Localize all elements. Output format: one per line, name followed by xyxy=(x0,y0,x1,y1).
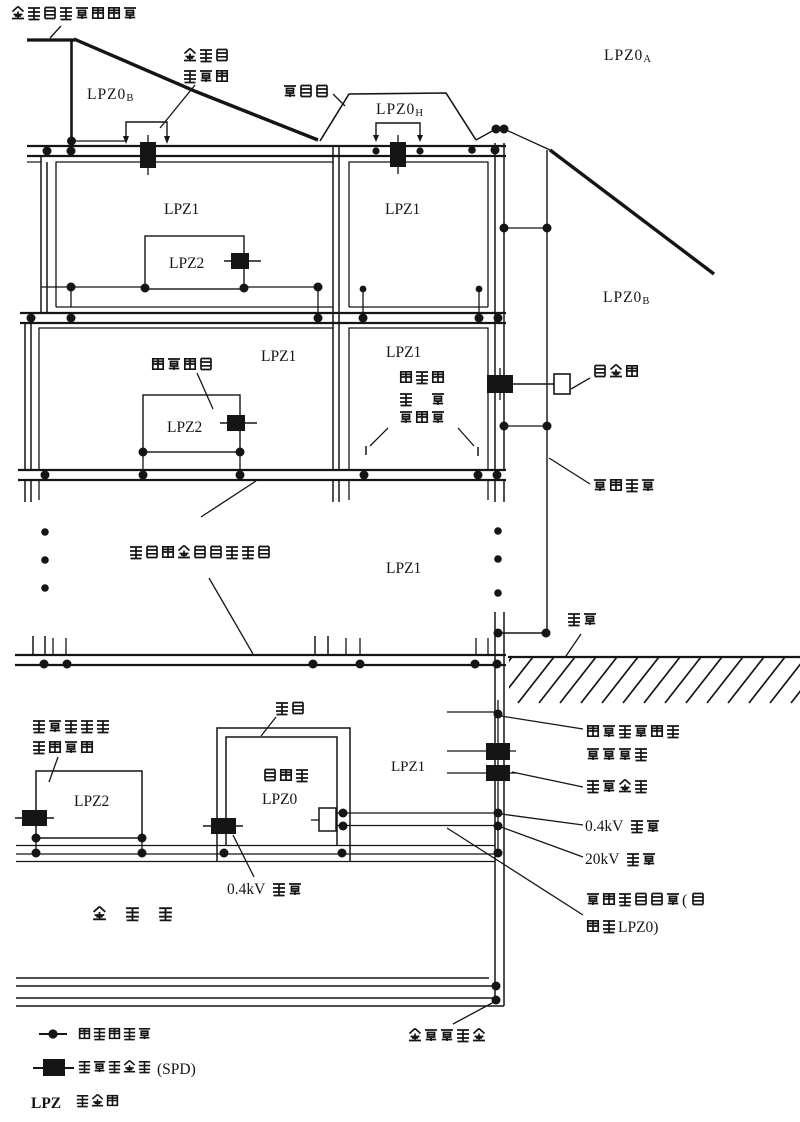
svg-text:LPZ1: LPZ1 xyxy=(386,560,421,577)
svg-text:LPZ0): LPZ0) xyxy=(618,919,658,936)
svg-text:LPZ1: LPZ1 xyxy=(391,759,425,775)
svg-text:(SPD): (SPD) xyxy=(157,1061,196,1078)
svg-text:LPZ1: LPZ1 xyxy=(164,201,199,218)
svg-text:LPZ0: LPZ0 xyxy=(262,791,298,808)
svg-text:LPZ1: LPZ1 xyxy=(385,201,420,218)
svg-text:(: ( xyxy=(682,892,687,909)
svg-text:LPZ: LPZ xyxy=(31,1095,61,1112)
svg-text:LPZ2: LPZ2 xyxy=(167,419,202,436)
svg-text:LPZ2: LPZ2 xyxy=(169,255,204,272)
svg-text:LPZ1: LPZ1 xyxy=(386,344,421,361)
svg-text:0.4kV: 0.4kV xyxy=(227,881,266,898)
svg-text:LPZ2: LPZ2 xyxy=(74,793,109,810)
svg-text:0.4kV: 0.4kV xyxy=(585,818,624,835)
svg-text:20kV: 20kV xyxy=(585,851,620,868)
svg-text:LPZ1: LPZ1 xyxy=(261,348,296,365)
